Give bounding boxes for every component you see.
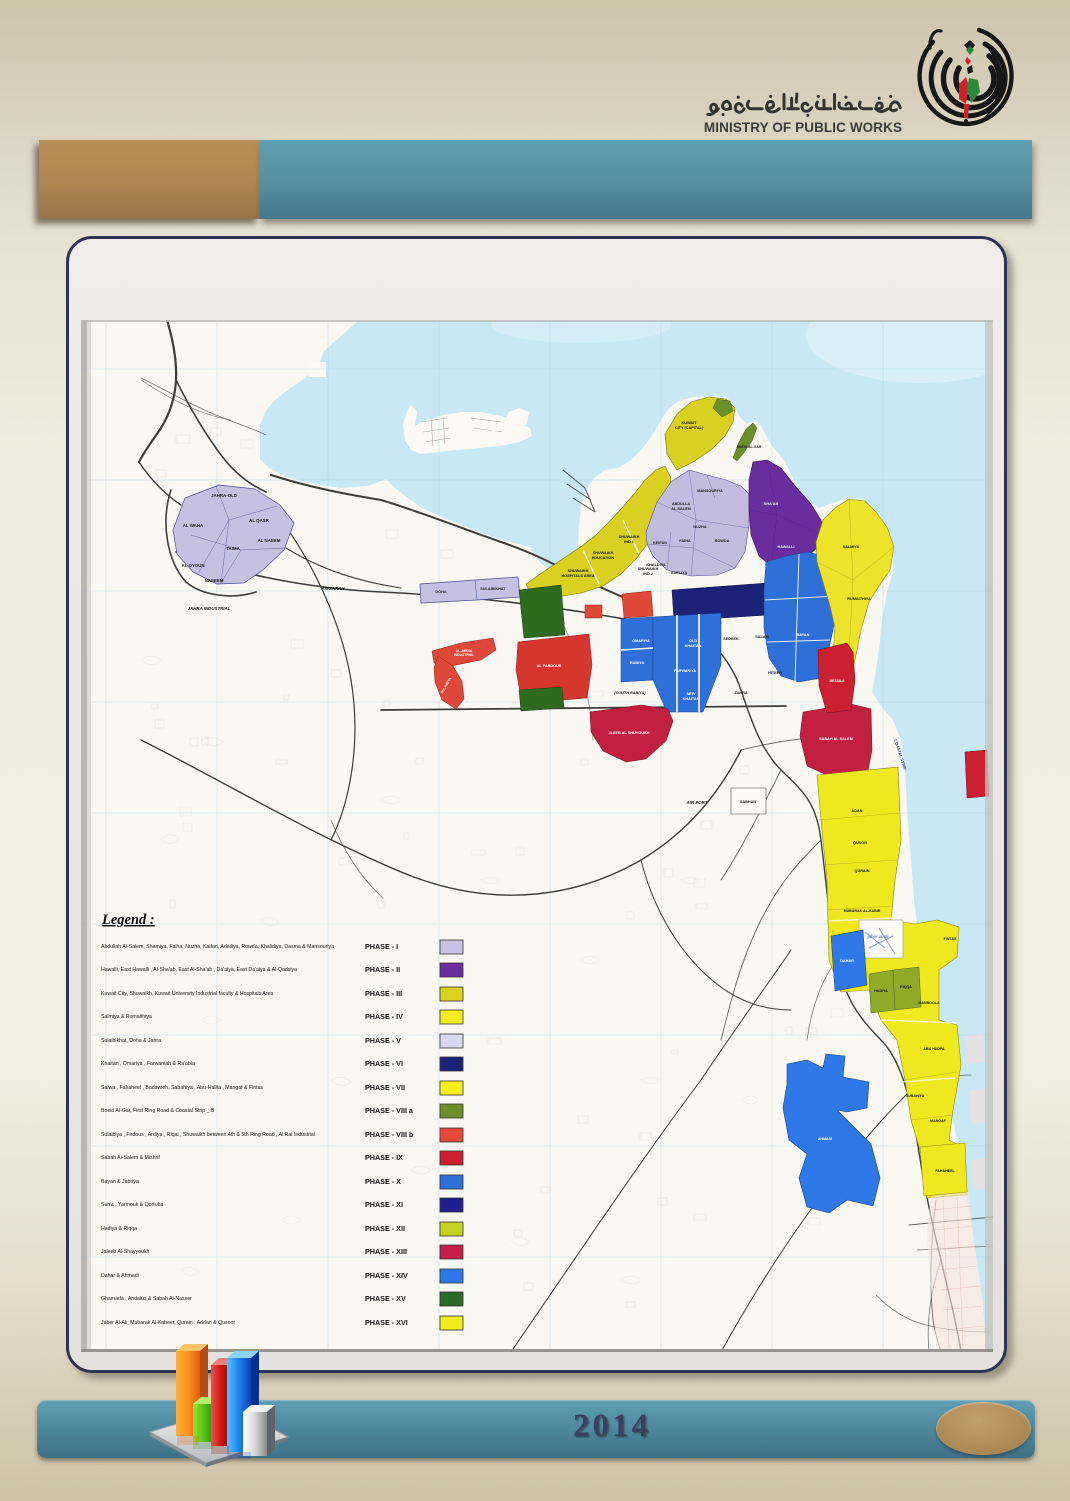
svg-text:AL-SALEM: AL-SALEM bbox=[671, 507, 691, 511]
svg-text:Legend :: Legend : bbox=[101, 912, 155, 928]
svg-text:PHASE - II: PHASE - II bbox=[365, 965, 400, 974]
svg-text:Salmiya & Rumaithiya: Salmiya & Rumaithiya bbox=[101, 1014, 152, 1020]
svg-text:CITY (CAPITAL): CITY (CAPITAL) bbox=[675, 426, 704, 430]
svg-text:PHASE - V: PHASE - V bbox=[365, 1036, 401, 1045]
svg-text:ROWDA: ROWDA bbox=[715, 539, 730, 543]
svg-text:AHMADI: AHMADI bbox=[818, 1137, 832, 1141]
svg-text:JAHRA INDUSTRIAL: JAHRA INDUSTRIAL bbox=[188, 606, 231, 611]
svg-text:PHASE - VI: PHASE - VI bbox=[365, 1059, 403, 1068]
svg-text:jaber al ali: jaber al ali bbox=[867, 934, 889, 939]
svg-text:MANGAF: MANGAF bbox=[930, 1119, 947, 1123]
svg-text:PHASE - VII: PHASE - VII bbox=[365, 1083, 405, 1092]
svg-text:SALMIYA: SALMIYA bbox=[843, 545, 860, 549]
svg-text:FAHAHEEL: FAHAHEEL bbox=[935, 1169, 955, 1173]
svg-text:KUWAIT: KUWAIT bbox=[682, 421, 698, 425]
svg-text:Khaitan , Omariya , Farwaniah: Khaitan , Omariya , Farwaniah & Ra'abia bbox=[101, 1061, 195, 1067]
svg-text:ADAN: ADAN bbox=[852, 809, 863, 813]
svg-text:TAIMA: TAIMA bbox=[226, 546, 240, 551]
svg-text:IND.1: IND.1 bbox=[624, 540, 634, 544]
svg-text:AMGARAH: AMGARAH bbox=[321, 586, 346, 591]
svg-text:Surra , Yarmouk & Qortuba: Surra , Yarmouk & Qortuba bbox=[101, 1202, 163, 1208]
svg-text:PHASE - XII: PHASE - XII bbox=[365, 1224, 405, 1233]
svg-text:NASEEM: NASEEM bbox=[205, 578, 224, 583]
svg-text:SHUWAIKH: SHUWAIKH bbox=[568, 569, 589, 573]
svg-text:SHUWAIKH: SHUWAIKH bbox=[593, 551, 614, 555]
svg-text:HOSPITALS AREA: HOSPITALS AREA bbox=[561, 574, 594, 578]
svg-text:Bayan & Jabriya: Bayan & Jabriya bbox=[101, 1179, 139, 1185]
svg-text:Bneid Al-Gar, First Ring Road: Bneid Al-Gar, First Ring Road & Coastal … bbox=[101, 1108, 215, 1114]
svg-text:PHASE - XI: PHASE - XI bbox=[365, 1200, 403, 1209]
svg-text:ZAHRA: ZAHRA bbox=[734, 691, 748, 695]
svg-text:OMARIYA: OMARIYA bbox=[632, 639, 650, 643]
svg-text:SABAH AL SALEM: SABAH AL SALEM bbox=[819, 737, 853, 741]
svg-text:Salwa , Fahaheel , Badawieh, S: Salwa , Fahaheel , Badawieh, Sabahiya , … bbox=[101, 1085, 263, 1091]
svg-text:PHASE - XVI: PHASE - XVI bbox=[365, 1318, 408, 1327]
svg-text:KHALDIYA: KHALDIYA bbox=[646, 563, 666, 567]
svg-text:PHASE - IX: PHASE - IX bbox=[365, 1153, 403, 1162]
svg-text:PHASE - IV: PHASE - IV bbox=[365, 1012, 403, 1021]
svg-text:PHASE - I: PHASE - I bbox=[365, 942, 398, 951]
svg-text:NEW: NEW bbox=[687, 692, 696, 696]
svg-text:JLEEB AL SHUYOUKH: JLEEB AL SHUYOUKH bbox=[609, 731, 650, 735]
svg-text:Sulaibiya , Firdous , Ardiya ,: Sulaibiya , Firdous , Ardiya , Riqai , S… bbox=[101, 1132, 315, 1138]
svg-text:RABIYA: RABIYA bbox=[630, 661, 644, 665]
svg-text:Sulaibikhat, Doha & Jahra: Sulaibikhat, Doha & Jahra bbox=[101, 1038, 161, 1044]
svg-text:SULAIBIKHAT: SULAIBIKHAT bbox=[480, 587, 506, 591]
svg-text:AL NAEEM: AL NAEEM bbox=[258, 538, 281, 543]
svg-text:Kuwait City, Shuwaikh, Kuwait: Kuwait City, Shuwaikh, Kuwait University… bbox=[101, 991, 273, 997]
svg-text:KEIFAN: KEIFAN bbox=[653, 541, 667, 545]
svg-text:IND.2: IND.2 bbox=[643, 572, 653, 576]
svg-text:Abdullah Al-Salem, Shamiya, Fa: Abdullah Al-Salem, Shamiya, Faiha, Nuzha… bbox=[101, 944, 334, 950]
svg-text:FINTAS: FINTAS bbox=[944, 937, 957, 941]
svg-text:MANBOOLA: MANBOOLA bbox=[918, 1001, 940, 1005]
svg-text:PHASE - XIII: PHASE - XIII bbox=[365, 1247, 407, 1256]
svg-text:ABU HUDFA: ABU HUDFA bbox=[923, 1047, 945, 1051]
svg-text:Jaleeb Al-Shayyoukh: Jaleeb Al-Shayyoukh bbox=[101, 1249, 150, 1255]
svg-text:AL WAHA: AL WAHA bbox=[183, 523, 204, 528]
svg-text:SHUWAIKH: SHUWAIKH bbox=[619, 535, 640, 539]
svg-text:FAIHA: FAIHA bbox=[679, 539, 691, 543]
svg-text:HITEEN: HITEEN bbox=[768, 671, 782, 675]
svg-text:DAHAR: DAHAR bbox=[840, 959, 854, 963]
svg-text:Dahar & Ahmadi: Dahar & Ahmadi bbox=[101, 1273, 139, 1279]
svg-text:ABDULLA: ABDULLA bbox=[672, 502, 691, 506]
svg-text:MANSOURIYA: MANSOURIYA bbox=[697, 489, 723, 493]
svg-text:Jaber Al-Ali, Mubarak Al-Kabee: Jaber Al-Ali, Mubarak Al-Kabeer, Qurain … bbox=[101, 1320, 235, 1326]
svg-text:PHASE - X: PHASE - X bbox=[365, 1177, 401, 1186]
svg-text:Hawalli, East Hawalli , Al-Sha: Hawalli, East Hawalli , Al-Sha'ab, East … bbox=[101, 967, 297, 973]
svg-text:Sabah Al-Salem & Mishrif: Sabah Al-Salem & Mishrif bbox=[101, 1155, 160, 1161]
svg-text:EDUCATION: EDUCATION bbox=[592, 556, 615, 560]
svg-text:Hadiya & Riqqa: Hadiya & Riqqa bbox=[101, 1226, 137, 1232]
svg-text:JAHRA-OLD: JAHRA-OLD bbox=[211, 493, 237, 498]
svg-text:PHASE - III: PHASE - III bbox=[365, 989, 402, 998]
svg-text:SHUWAIKH: SHUWAIKH bbox=[638, 567, 659, 571]
svg-text:QUSOR: QUSOR bbox=[853, 841, 867, 845]
svg-text:SABHAN: SABHAN bbox=[740, 800, 757, 804]
svg-text:AL FARDOUS: AL FARDOUS bbox=[537, 664, 562, 668]
svg-text:MUBARAK AL-KABIR: MUBARAK AL-KABIR bbox=[844, 909, 881, 913]
svg-text:Ghamada , Andalus & Sabah Al-N: Ghamada , Andalus & Sabah Al-Nasser bbox=[101, 1296, 192, 1302]
svg-text:FARWANIYA: FARWANIYA bbox=[674, 669, 697, 673]
svg-text:KHAITAN: KHAITAN bbox=[685, 644, 702, 648]
svg-text:RIQQA: RIQQA bbox=[900, 985, 912, 989]
svg-text:DOHA: DOHA bbox=[435, 590, 446, 594]
svg-text:RUMAITHIYA: RUMAITHIYA bbox=[847, 597, 871, 601]
svg-text:MESSILA: MESSILA bbox=[829, 679, 845, 683]
svg-text:PHASE - XV: PHASE - XV bbox=[365, 1294, 406, 1303]
svg-text:BNEID AL-GAR: BNEID AL-GAR bbox=[737, 445, 762, 449]
svg-text:SUBAHIYA: SUBAHIYA bbox=[906, 1094, 925, 1098]
svg-text:ADELIYA: ADELIYA bbox=[671, 571, 688, 575]
svg-text:RAYAN: RAYAN bbox=[797, 633, 810, 637]
svg-text:SHA'AB: SHA'AB bbox=[764, 502, 779, 506]
svg-text:OLD: OLD bbox=[689, 639, 697, 643]
svg-text:AIR PORT: AIR PORT bbox=[686, 800, 708, 805]
svg-text:PHASE - VIII a: PHASE - VIII a bbox=[365, 1106, 414, 1115]
svg-text:PHASE - VIII b: PHASE - VIII b bbox=[365, 1130, 414, 1139]
svg-text:HAWALLI: HAWALLI bbox=[777, 545, 794, 549]
svg-text:(SOUTH RABIYA): (SOUTH RABIYA) bbox=[614, 691, 646, 695]
svg-text:PHASE - XIV: PHASE - XIV bbox=[365, 1271, 408, 1280]
svg-text:SEDEEK: SEDEEK bbox=[723, 637, 739, 641]
svg-text:NUZHA: NUZHA bbox=[693, 525, 707, 529]
svg-text:HADIYA: HADIYA bbox=[874, 989, 888, 993]
svg-text:KHAITAN: KHAITAN bbox=[683, 697, 700, 701]
svg-text:AL OYOUN: AL OYOUN bbox=[181, 563, 204, 568]
svg-text:QURAIN: QURAIN bbox=[855, 869, 870, 873]
svg-text:AL QASR: AL QASR bbox=[249, 518, 270, 523]
svg-text:SALAM: SALAM bbox=[755, 635, 769, 639]
svg-text:INDUSTRIAL: INDUSTRIAL bbox=[454, 653, 475, 657]
